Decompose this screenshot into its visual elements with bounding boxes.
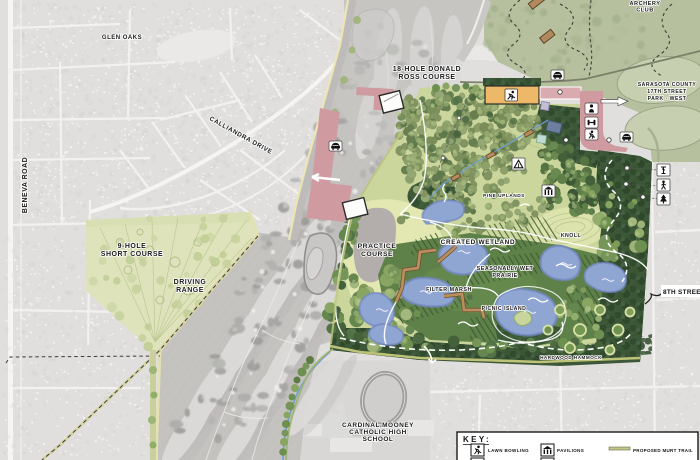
svg-text:SHORT COURSE: SHORT COURSE — [101, 251, 163, 258]
svg-text:SEASONALLY WET: SEASONALLY WET — [477, 266, 534, 272]
svg-text:SCHOOL: SCHOOL — [363, 436, 394, 443]
svg-text:CLUB: CLUB — [636, 8, 654, 14]
svg-text:PARK - WEST: PARK - WEST — [648, 96, 687, 102]
svg-text:18-HOLE DONALD: 18-HOLE DONALD — [393, 66, 461, 73]
svg-text:SARASOTA COUNTY: SARASOTA COUNTY — [638, 82, 697, 88]
svg-text:PAVILIONS: PAVILIONS — [557, 448, 584, 453]
svg-text:8TH STREET: 8TH STREET — [663, 289, 700, 296]
svg-text:FILTER MARSH: FILTER MARSH — [426, 287, 472, 293]
svg-text:PRACTICE: PRACTICE — [358, 243, 397, 250]
svg-text:PICNIC ISLAND: PICNIC ISLAND — [482, 306, 527, 312]
svg-text:9-HOLE: 9-HOLE — [118, 243, 147, 250]
svg-text:CREATED WETLAND: CREATED WETLAND — [441, 239, 516, 246]
svg-text:KNOLL: KNOLL — [561, 233, 582, 239]
svg-text:ROSS COURSE: ROSS COURSE — [398, 74, 455, 81]
svg-text:HARDWOOD HAMMOCK: HARDWOOD HAMMOCK — [540, 355, 602, 360]
svg-text:KEY:: KEY: — [463, 435, 491, 444]
svg-text:LAWN BOWLING: LAWN BOWLING — [488, 448, 529, 453]
svg-text:CATHOLIC HIGH: CATHOLIC HIGH — [349, 429, 407, 436]
svg-text:GLEN OAKS: GLEN OAKS — [102, 35, 142, 41]
svg-text:RANGE: RANGE — [176, 287, 204, 294]
svg-text:BENEVA ROAD: BENEVA ROAD — [22, 157, 29, 213]
svg-text:17TH STREET: 17TH STREET — [647, 89, 687, 95]
svg-text:ARCHERY: ARCHERY — [630, 1, 661, 7]
svg-text:PRAIRIE: PRAIRIE — [492, 273, 517, 279]
svg-text:CARDINAL MOONEY: CARDINAL MOONEY — [342, 422, 414, 429]
svg-text:PINE UPLANDS: PINE UPLANDS — [483, 193, 525, 199]
svg-text:DRIVING: DRIVING — [174, 279, 207, 286]
svg-text:PROPOSED MURT TRAIL: PROPOSED MURT TRAIL — [633, 448, 693, 453]
svg-text:COURSE: COURSE — [361, 251, 393, 258]
